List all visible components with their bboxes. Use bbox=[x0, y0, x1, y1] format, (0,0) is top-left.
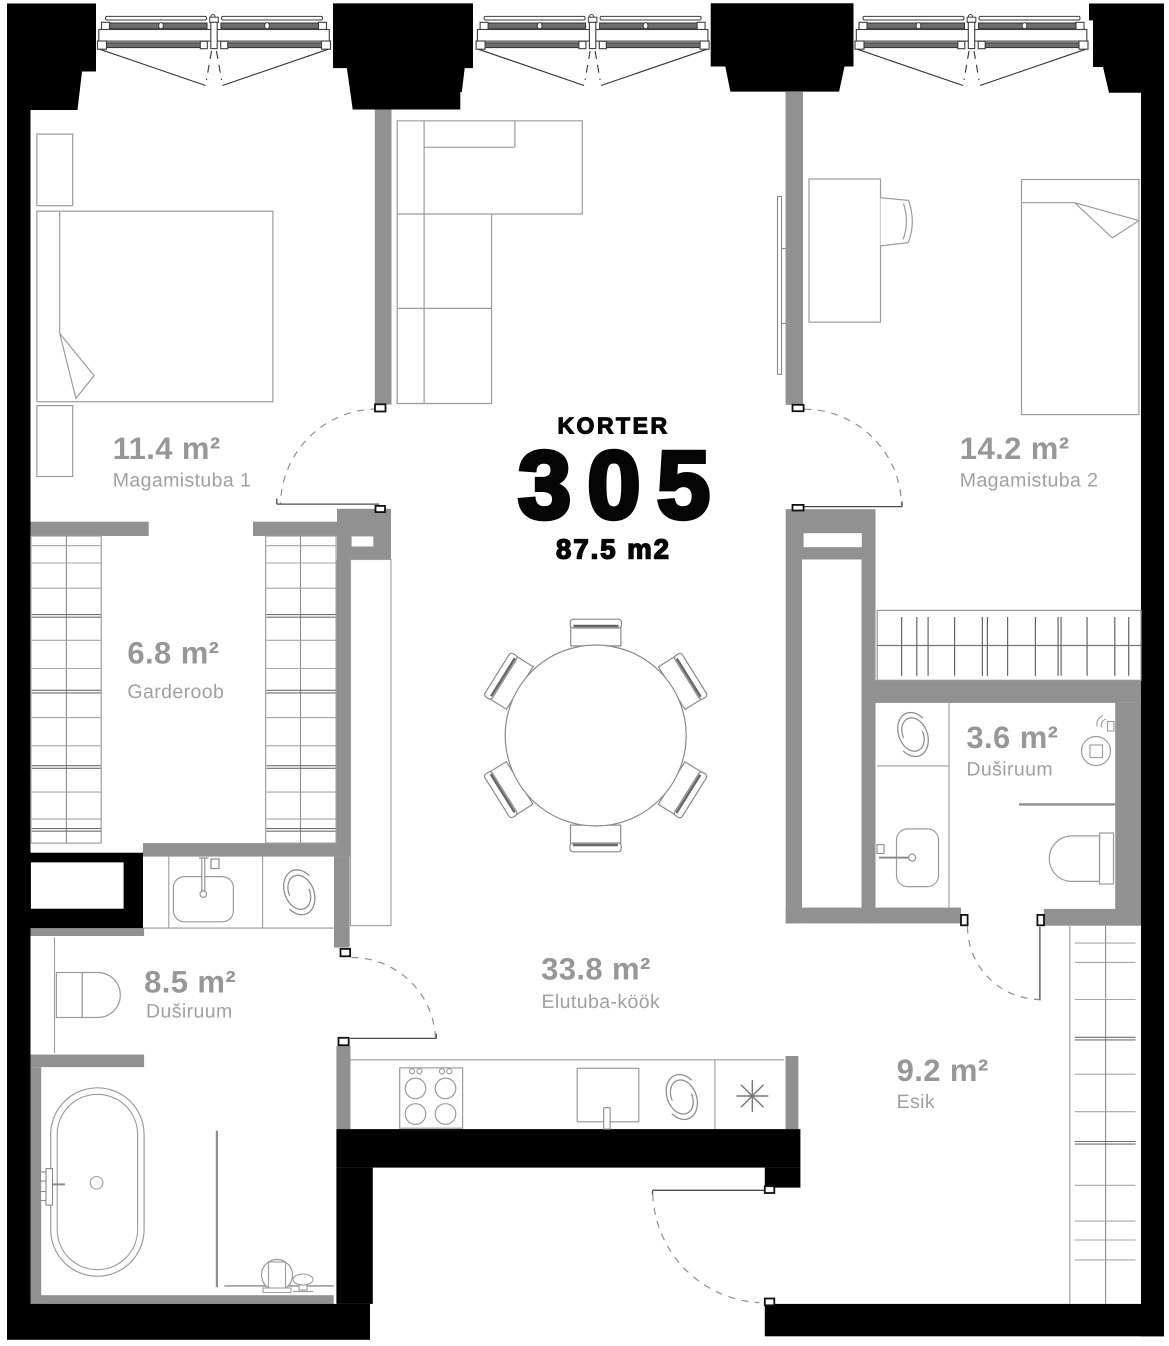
svg-text:Magamistuba 2: Magamistuba 2 bbox=[960, 470, 1099, 492]
svg-text:305: 305 bbox=[518, 432, 726, 539]
svg-text:Magamistuba 1: Magamistuba 1 bbox=[113, 470, 252, 492]
svg-text:Elutuba-köök: Elutuba-köök bbox=[542, 991, 661, 1013]
svg-text:Duširuum: Duširuum bbox=[146, 1001, 233, 1023]
svg-text:Garderoob: Garderoob bbox=[127, 681, 224, 703]
svg-text:6.8 m²: 6.8 m² bbox=[127, 636, 219, 671]
svg-text:Duširuum: Duširuum bbox=[966, 759, 1053, 781]
svg-text:11.4 m²: 11.4 m² bbox=[113, 431, 221, 466]
svg-text:Esik: Esik bbox=[897, 1091, 935, 1113]
svg-text:14.2 m²: 14.2 m² bbox=[960, 431, 1070, 466]
svg-text:33.8 m²: 33.8 m² bbox=[541, 951, 651, 986]
svg-text:87.5 m2: 87.5 m2 bbox=[556, 534, 671, 565]
svg-text:9.2 m²: 9.2 m² bbox=[897, 1053, 989, 1088]
svg-text:3.6 m²: 3.6 m² bbox=[966, 720, 1058, 755]
svg-text:8.5 m²: 8.5 m² bbox=[144, 964, 236, 999]
